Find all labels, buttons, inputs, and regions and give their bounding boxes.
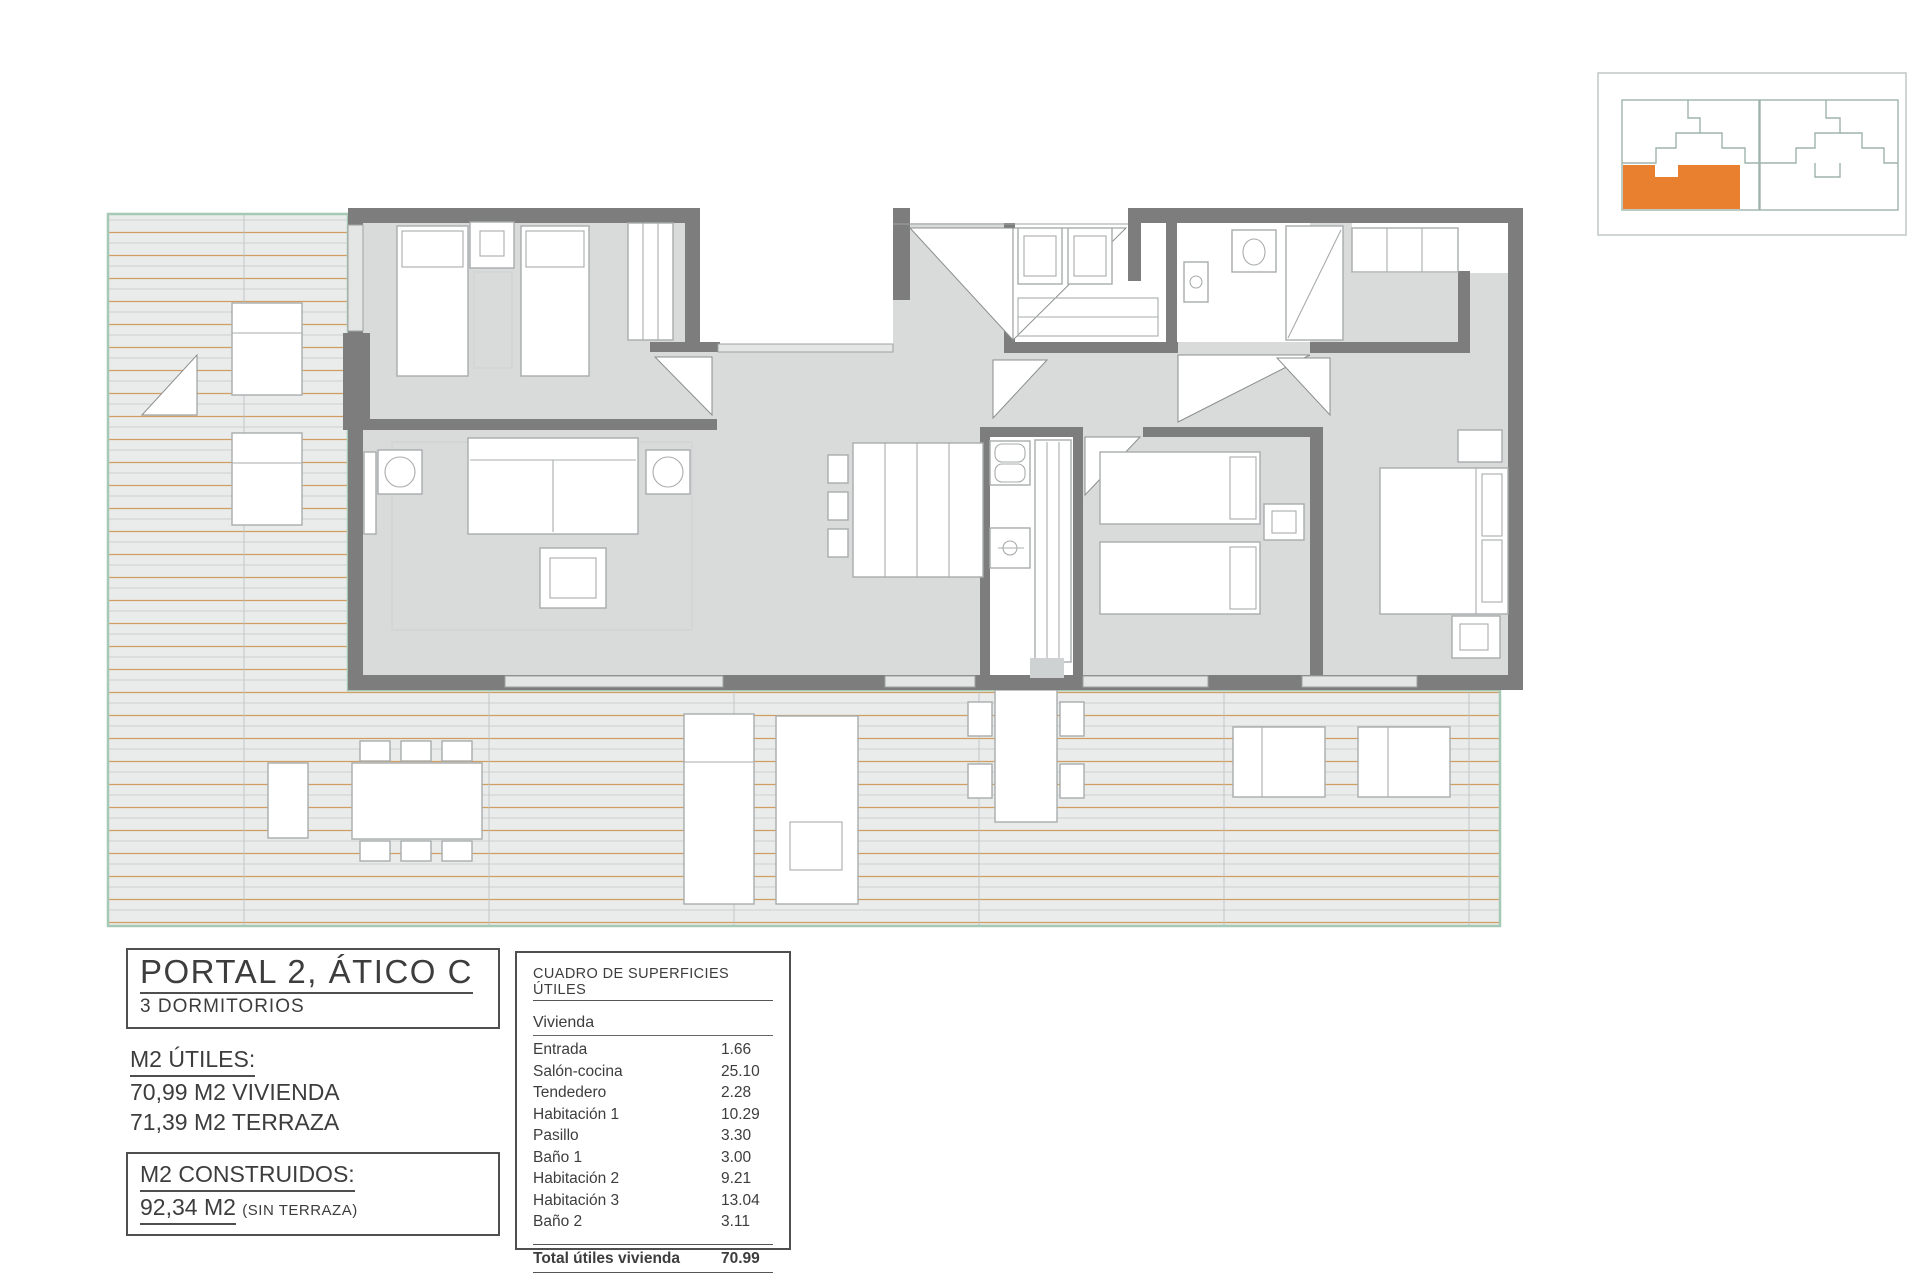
table-total-row: Total útiles vivienda 70.99 [533, 1244, 773, 1273]
apartment [343, 208, 1523, 690]
floorplan-sheet: PORTAL 2, ÁTICO C 3 DORMITORIOS M2 ÚTILE… [0, 0, 1920, 1280]
entry-step [1030, 658, 1064, 678]
table-row: Habitación 313.04 [533, 1190, 773, 1212]
useful-area-block: M2 ÚTILES: 70,99 M2 VIVIENDA 71,39 M2 TE… [130, 1044, 340, 1137]
entry-closet [1352, 228, 1458, 272]
useful-area-terraza: 71,39 M2 TERRAZA [130, 1107, 340, 1137]
minimap-highlighted-unit [1623, 165, 1740, 209]
plan-subtitle: 3 DORMITORIOS [140, 996, 486, 1018]
built-area-heading: M2 CONSTRUIDOS: [140, 1159, 355, 1192]
total-label: Total útiles vivienda [533, 1250, 680, 1268]
total-value: 70.99 [721, 1250, 773, 1268]
table-row: Entrada1.66 [533, 1039, 773, 1061]
table-row: Baño 13.00 [533, 1147, 773, 1169]
surface-table-group-label: Vivienda [533, 1014, 773, 1036]
table-row: Habitación 29.21 [533, 1168, 773, 1190]
surface-areas-table: CUADRO DE SUPERFICIES ÚTILES Vivienda En… [515, 951, 791, 1250]
useful-area-vivienda: 70,99 M2 VIVIENDA [130, 1077, 340, 1107]
table-row: Salón-cocina25.10 [533, 1061, 773, 1083]
useful-area-heading: M2 ÚTILES: [130, 1044, 255, 1077]
built-area-note: (SIN TERRAZA) [242, 1202, 357, 1219]
built-area-block: M2 CONSTRUIDOS: 92,34 M2 (SIN TERRAZA) [126, 1152, 500, 1236]
table-row: Tendedero2.28 [533, 1082, 773, 1104]
surface-table-title: CUADRO DE SUPERFICIES ÚTILES [533, 966, 773, 1001]
table-row: Habitación 110.29 [533, 1104, 773, 1126]
title-block: PORTAL 2, ÁTICO C 3 DORMITORIOS [126, 948, 500, 1029]
built-area-value: 92,34 M2 [140, 1192, 236, 1225]
table-row: Baño 23.11 [533, 1211, 773, 1233]
location-minimap [1598, 73, 1906, 235]
plan-title: PORTAL 2, ÁTICO C [140, 953, 473, 994]
table-row: Pasillo3.30 [533, 1125, 773, 1147]
